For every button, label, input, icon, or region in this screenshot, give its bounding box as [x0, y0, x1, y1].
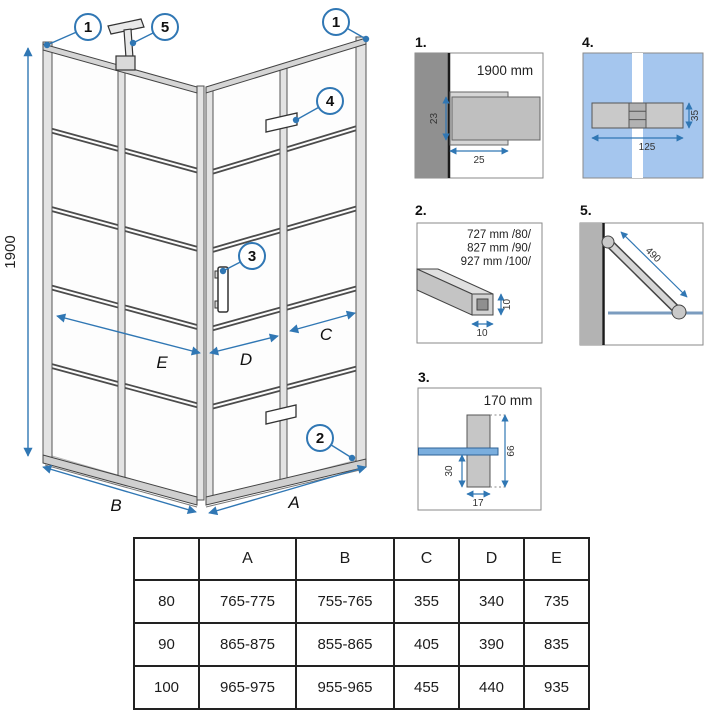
detail-3-dim-total: 66	[506, 445, 517, 457]
dim-label-d: D	[240, 350, 252, 369]
shower-enclosure-spec-sheet: { "colors": { "accent": "#3077b4", "line…	[0, 0, 721, 720]
support-bracket	[108, 19, 144, 70]
cell-a: 865-875	[199, 623, 296, 666]
callout-1-left: 1	[84, 19, 92, 36]
header-d: D	[459, 538, 524, 580]
detail-3-label: 3.	[418, 369, 430, 385]
detail-2-label: 2.	[415, 202, 427, 218]
mullion-left	[118, 64, 125, 478]
main-drawing: 1900 E D C B A 1 5 1 4 3	[0, 0, 405, 530]
detail-1-dim-width: 25	[473, 155, 485, 166]
detail-2-size-80: 727 mm /80/	[467, 229, 532, 241]
detail-5-label: 5.	[580, 202, 592, 218]
size-cell: 100	[134, 666, 199, 709]
table-row: 100 965-975 955-965 455 440 935	[134, 666, 589, 709]
detail-4-connector: 4. 35 125	[575, 30, 721, 185]
detail-3-dim-width: 17	[472, 498, 484, 509]
cell-e: 835	[524, 623, 589, 666]
dim-label-c: C	[320, 325, 333, 344]
size-table: A B C D E 80 765-775 755-765 355 340 735…	[133, 537, 590, 710]
table-row: 90 865-875 855-865 405 390 835	[134, 623, 589, 666]
cell-c: 405	[394, 623, 459, 666]
detail-1-wall-profile: 1. 1900 mm 23 25	[405, 30, 555, 185]
cell-c: 355	[394, 580, 459, 623]
wall-profile-right	[356, 37, 366, 463]
callout-5: 5	[161, 19, 169, 36]
detail-4-dim-height: 35	[690, 110, 701, 122]
detail-2-dim-v: 10	[502, 299, 513, 311]
header-a: A	[199, 538, 296, 580]
detail-2-tube: 2. 727 mm /80/ 827 mm /90/ 927 mm /100/ …	[405, 195, 555, 355]
detail-2-dim-h: 10	[476, 328, 488, 339]
detail-3-title: 170 mm	[484, 393, 533, 408]
header-c: C	[394, 538, 459, 580]
header-blank	[134, 538, 199, 580]
dim-label-b: B	[110, 496, 121, 515]
detail-1-label: 1.	[415, 34, 427, 50]
detail-2-size-100: 927 mm /100/	[461, 256, 532, 268]
detail-3-handle: 3. 170 mm 66 30 17	[405, 362, 555, 520]
detail-2-size-90: 827 mm /90/	[467, 243, 532, 255]
cell-c: 455	[394, 666, 459, 709]
cell-b: 855-865	[296, 623, 394, 666]
table-row: 80 765-775 755-765 355 340 735	[134, 580, 589, 623]
callout-4: 4	[326, 93, 335, 110]
height-dimension-label: 1900	[2, 235, 19, 268]
table-header-row: A B C D E	[134, 538, 589, 580]
cell-d: 440	[459, 666, 524, 709]
cell-e: 735	[524, 580, 589, 623]
dim-label-e: E	[156, 353, 168, 372]
cell-a: 965-975	[199, 666, 296, 709]
dim-label-a: A	[287, 493, 299, 512]
size-cell: 90	[134, 623, 199, 666]
wall-profile-left	[43, 42, 52, 458]
size-cell: 80	[134, 580, 199, 623]
cell-a: 765-775	[199, 580, 296, 623]
header-e: E	[524, 538, 589, 580]
height-dimension: 1900	[2, 48, 28, 456]
detail-1-dim-depth: 23	[429, 113, 440, 125]
callout-3: 3	[248, 248, 256, 265]
detail-4-label: 4.	[582, 34, 594, 50]
cell-e: 935	[524, 666, 589, 709]
corner-profile-b	[206, 87, 213, 500]
header-b: B	[296, 538, 394, 580]
detail-3-dim-below: 30	[444, 465, 455, 477]
cell-d: 390	[459, 623, 524, 666]
glass-cross-section	[419, 448, 499, 455]
wall-section	[580, 223, 602, 345]
corner-profile-a	[197, 86, 204, 500]
cell-b: 955-965	[296, 666, 394, 709]
detail-4-dim-length: 125	[639, 142, 656, 153]
detail-1-title: 1900 mm	[477, 63, 533, 78]
callout-1-right: 1	[332, 14, 340, 31]
cell-b: 755-765	[296, 580, 394, 623]
glass-in-profile	[452, 97, 540, 140]
cell-d: 340	[459, 580, 524, 623]
callout-2: 2	[316, 430, 324, 447]
detail-5-support-arm: 5. 490	[575, 195, 721, 355]
